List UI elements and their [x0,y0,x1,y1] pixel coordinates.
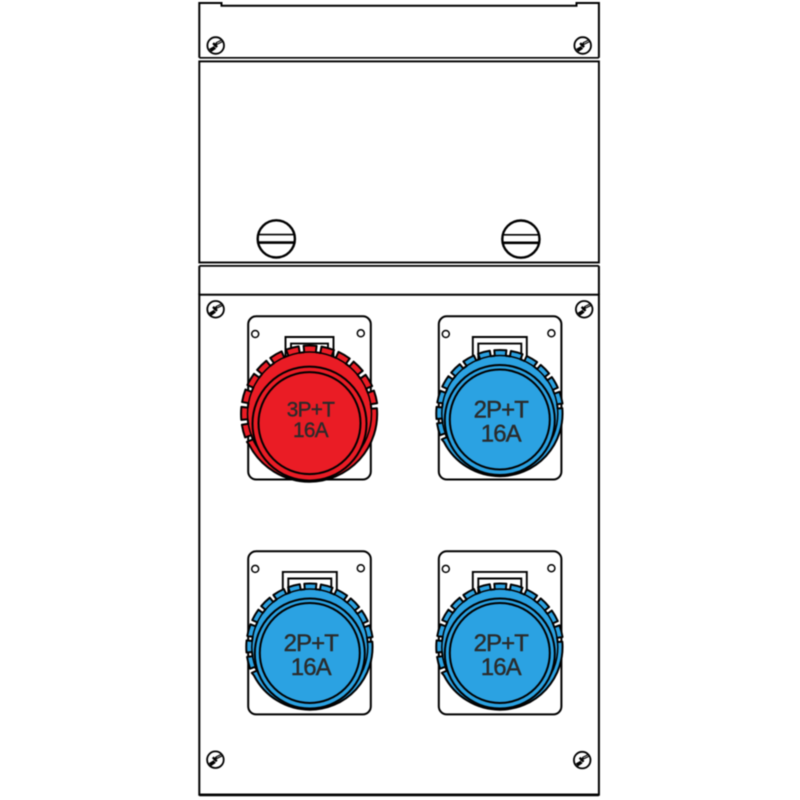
svg-text:16A: 16A [481,421,522,448]
svg-text:2P+T: 2P+T [284,630,340,657]
svg-text:16A: 16A [291,654,332,681]
svg-text:16A: 16A [293,419,329,442]
svg-text:16A: 16A [481,654,522,681]
svg-text:2P+T: 2P+T [474,396,530,423]
svg-text:2P+T: 2P+T [474,630,530,657]
svg-text:3P+T: 3P+T [287,399,335,422]
